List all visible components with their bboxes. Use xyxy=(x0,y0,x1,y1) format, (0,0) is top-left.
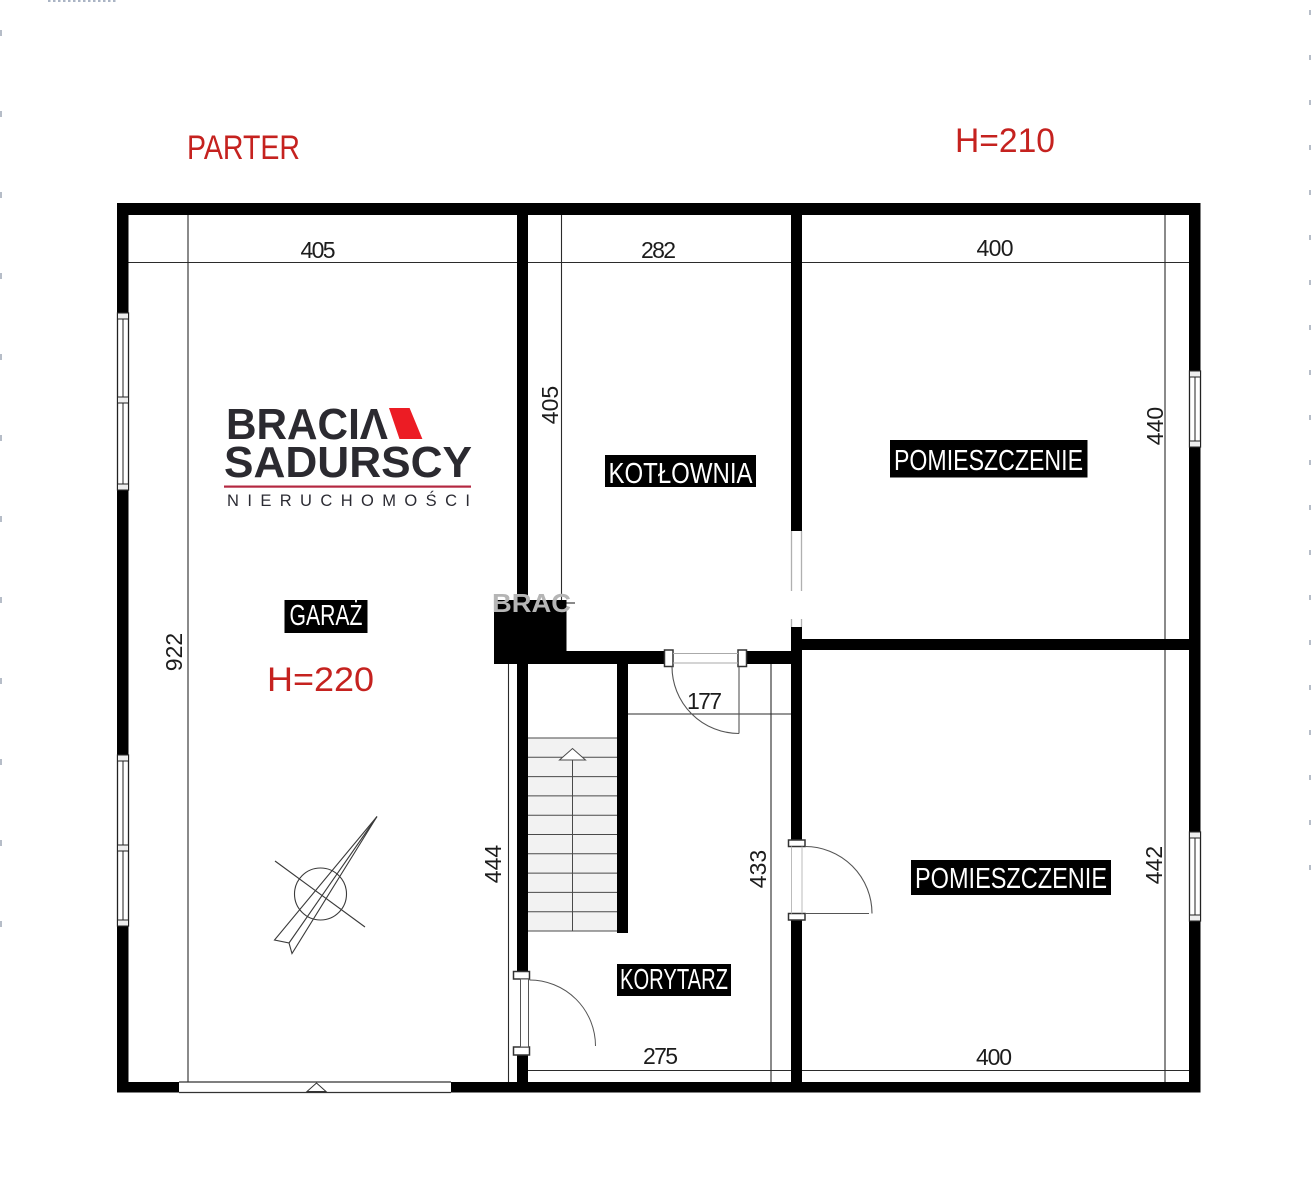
svg-text:H=210: H=210 xyxy=(955,122,1055,160)
svg-text:442: 442 xyxy=(1141,846,1167,884)
svg-text:SADURSCY: SADURSCY xyxy=(224,438,472,487)
svg-text:444: 444 xyxy=(480,845,506,884)
svg-text:H=220: H=220 xyxy=(267,661,374,699)
svg-text:POMIESZCZENIE: POMIESZCZENIE xyxy=(894,445,1083,477)
svg-text:KOTŁOWNIA: KOTŁOWNIA xyxy=(609,458,754,490)
svg-text:POMIESZCZENIE: POMIESZCZENIE xyxy=(915,863,1107,895)
svg-text:NIERUCHOMOŚCI: NIERUCHOMOŚCI xyxy=(227,491,470,510)
svg-text:KORYTARZ: KORYTARZ xyxy=(620,964,728,996)
svg-text:405: 405 xyxy=(301,237,336,263)
svg-text:PARTER: PARTER xyxy=(187,129,300,167)
svg-text:433: 433 xyxy=(745,850,771,888)
svg-text:922: 922 xyxy=(161,633,187,671)
svg-text:282: 282 xyxy=(641,237,676,263)
svg-text:400: 400 xyxy=(977,235,1014,261)
svg-text:400: 400 xyxy=(976,1044,1012,1070)
svg-text:275: 275 xyxy=(643,1043,678,1069)
svg-text:GARAŻ: GARAŻ xyxy=(290,599,363,632)
svg-text:405: 405 xyxy=(537,386,563,424)
svg-text:440: 440 xyxy=(1142,407,1168,445)
svg-text:BRAC: BRAC xyxy=(492,588,571,618)
svg-text:177: 177 xyxy=(687,688,722,714)
